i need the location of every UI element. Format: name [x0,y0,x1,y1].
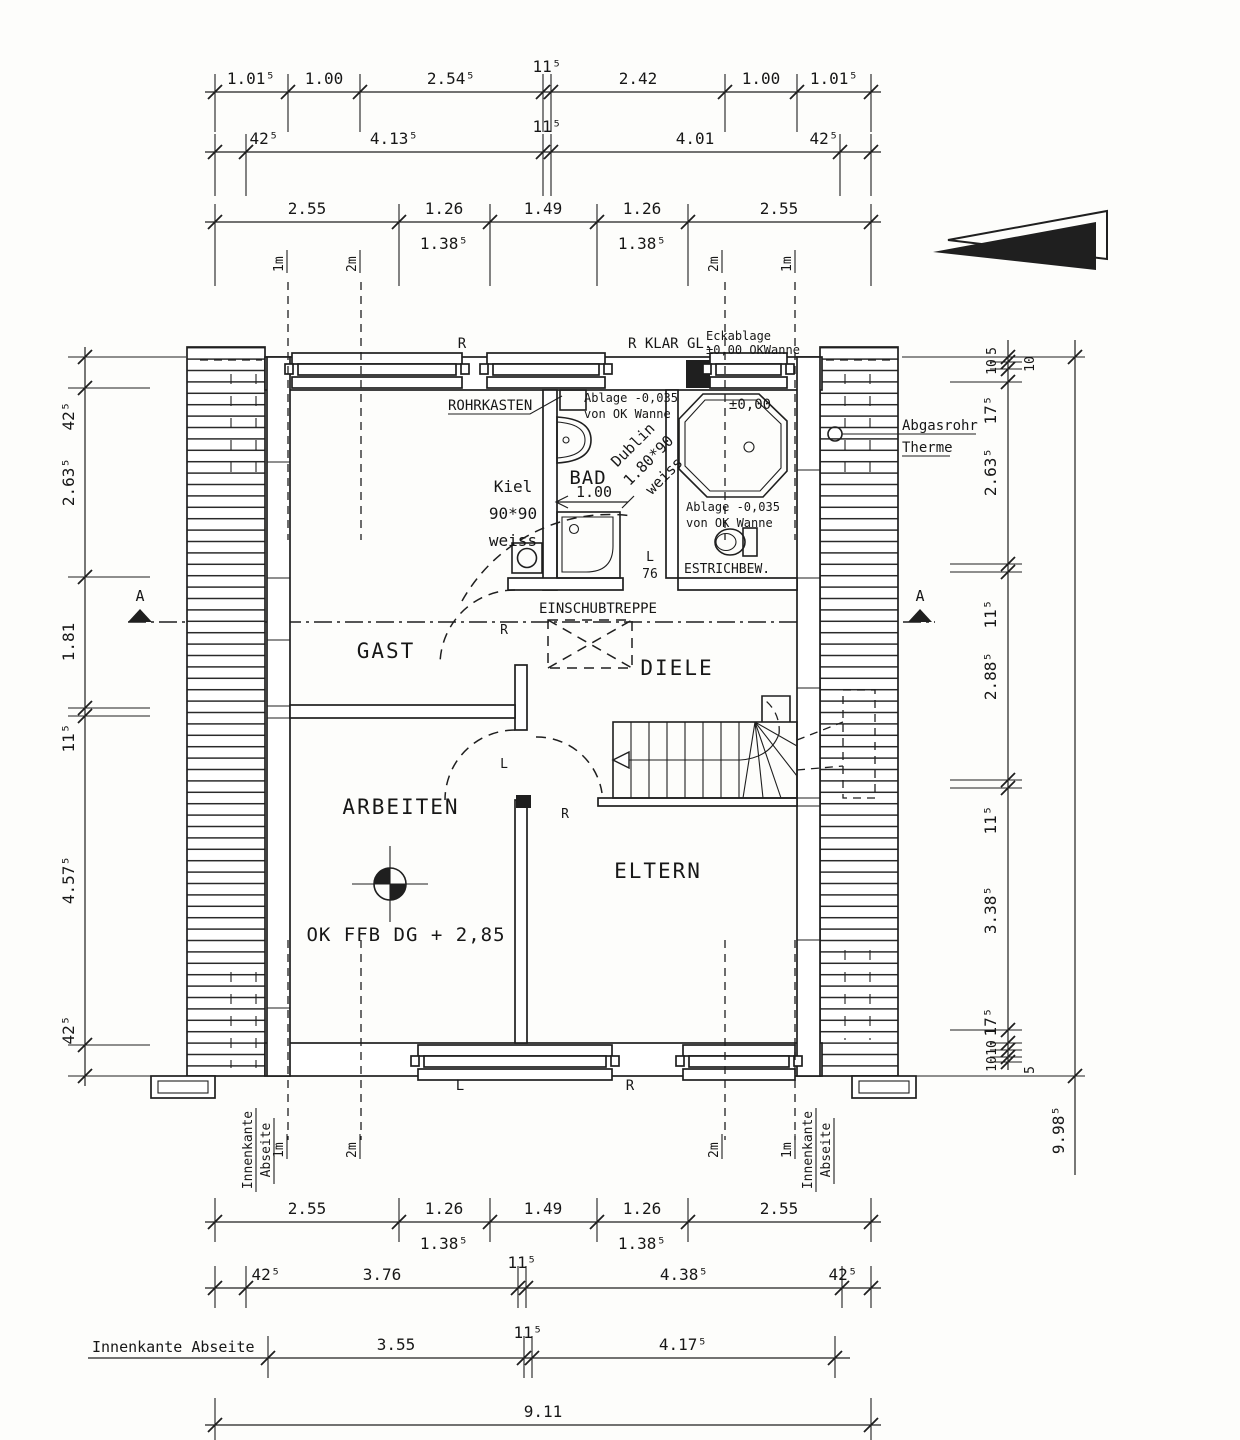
door-label: 76 [642,567,658,582]
height-line-label: 2m [345,1142,360,1158]
dim-label: 1.00 [305,69,344,88]
dim-label: 10 [985,1040,1000,1056]
right-dimension-chains: 5 10 10 17⁵ 2.63⁵ 11⁵ 2.88⁵ 11⁵ 3.38⁵ 17… [902,340,1085,1175]
height-line-label: 1m [780,1142,795,1158]
dim-label-total-height: 9.98⁵ [1049,1106,1068,1154]
section-marker-left-icon [128,609,152,622]
dim-label: 1.81 [59,623,78,662]
dim-label: 1.38⁵ [420,1234,468,1253]
dim-label: 1.49 [524,1199,563,1218]
door-label: L [646,550,654,565]
floorplan-page: A A 1m 2m 2m 1m 1m 2 [0,0,1240,1440]
dim-label: 4.17⁵ [659,1335,707,1354]
dim-label: 17⁵ [981,396,1000,425]
dim-label: 1.01⁵ [227,69,275,88]
dim-label: 3.38⁵ [981,886,1000,934]
floorplan-drawing: A A 1m 2m 2m 1m 1m 2 [0,0,1240,1440]
dim-label: 10 [985,359,1000,375]
floor-level-label: OK FFB DG + 2,85 [306,924,505,946]
dim-label: 2.54⁵ [427,69,475,88]
door-label: R [500,623,508,638]
dim-label: 42⁵ [250,129,279,148]
window-label: R [458,336,467,352]
top-dimension-chains: 1.01⁵ 1.00 2.54⁵ 11⁵ 2.42 1.00 1.01⁵ 42⁵… [205,57,881,286]
windows-bottom [411,1045,802,1080]
dim-label: 11⁵ [508,1253,537,1272]
wall-left [267,357,290,1076]
dim-label: 11⁵ [533,117,562,136]
dim-label: 11⁵ [59,724,78,753]
level-marker [352,846,428,922]
window-label: R [626,1078,635,1094]
dim-label: 2.55 [288,1199,327,1218]
dim-label: 42⁵ [810,129,839,148]
toilet-icon [715,528,757,556]
dim-label: 2.63⁵ [59,458,78,506]
dim-label: 1.00 [742,69,781,88]
room-label-eltern: ELTERN [614,859,702,883]
ablage-label: von OK Wanne [686,516,773,530]
window [703,353,794,388]
window [676,1045,802,1080]
eaves-box-left [151,1076,215,1098]
svg-text:Therme: Therme [902,440,953,456]
wall-block [516,795,531,808]
window-label: R KLAR GL. [628,336,712,352]
height-line-label: 2m [345,256,360,272]
shower-type-label: weiss [489,531,537,550]
room-label-bad: BAD [569,467,606,489]
estrich-label: ESTRICHBEW. [684,562,770,577]
dim-label: 4.01 [676,129,715,148]
roof-band-right [820,347,898,1076]
pipe-duct-box [560,390,586,410]
bottom-dimension-chains: 2.55 1.26 1.38⁵ 1.49 1.26 1.38⁵ 2.55 42⁵… [88,1198,881,1440]
shower-type-label: 90*90 [489,504,537,523]
svg-text:Innenkante: Innenkante [801,1111,816,1189]
dim-label: 10 [985,1056,1000,1072]
dim-label: 2.42 [619,69,658,88]
height-line-label: 2m [707,1142,722,1158]
dim-label: 42⁵ [829,1265,858,1284]
dim-label: 17⁵ [981,1008,1000,1037]
stair-direction-arrow-icon [613,752,629,768]
rohrkasten-label: ROHRKASTEN [448,398,532,414]
dim-label-total-width: 9.11 [524,1402,563,1421]
dim-label: 42⁵ [252,1265,281,1284]
section-marker-right-icon [908,609,932,622]
dim-label: 2.63⁵ [981,448,1000,496]
ablage-label: Ablage -0,035 [584,391,678,405]
eckablage-label: ±0,00 OKWanne [706,343,800,357]
room-label-gast: GAST [357,639,416,663]
attic-ladder-label: EINSCHUBTREPPE [539,601,657,617]
window [480,353,612,388]
dim-label: 3.55 [377,1335,416,1354]
room-label-arbeiten: ARBEITEN [342,795,459,819]
dim-label: 3.76 [363,1265,402,1284]
height-line-label: 1m [272,256,287,272]
roof-band-left [187,347,265,1076]
wall-right [797,357,820,1076]
section-label-left: A [135,587,144,605]
innenkante-abseite-label: Innenkante Abseite [92,1338,255,1356]
dim-label: 1.26 [425,199,464,218]
svg-text:Abseite: Abseite [259,1122,274,1177]
dim-label: 11⁵ [981,600,1000,629]
dim-label: 4.38⁵ [660,1265,708,1284]
dim-label: 11⁵ [533,57,562,76]
dim-label: 2.55 [760,1199,799,1218]
dim-label: 1.26 [623,1199,662,1218]
dim-label: 1.38⁵ [420,234,468,253]
dim-label: 1.38⁵ [618,1234,666,1253]
left-dimension-chain: 42⁵ 2.63⁵ 1.81 11⁵ 4.57⁵ 42⁵ [59,347,186,1086]
level-label: ±0,00 [729,397,771,413]
dim-label: 1.49 [524,199,563,218]
dim-label: 10 [1023,356,1038,372]
shower-type-label: Kiel [494,477,533,496]
ablage-label: von OK Wanne [584,407,671,421]
north-arrow-icon [933,211,1107,270]
dim-label: 2.88⁵ [981,652,1000,700]
window [411,1045,619,1080]
eaves-box-right [852,1076,916,1098]
dim-label: 5 [985,347,1000,355]
door-arc-eltern [536,737,602,793]
dim-label: 4.57⁵ [59,856,78,904]
dim-label: 42⁵ [59,1016,78,1045]
svg-text:Innenkante: Innenkante [241,1111,256,1189]
dim-label: 1.26 [623,199,662,218]
height-line-label: 1m [780,256,795,272]
dim-label: 11⁵ [514,1323,543,1342]
ablage-label: Ablage -0,035 [686,500,780,514]
dim-label: 5 [1023,1066,1038,1074]
height-line-label: 2m [707,256,722,272]
door-label: L [500,757,508,772]
svg-text:Abgasrohr: Abgasrohr [902,418,978,434]
dim-label: 2.55 [760,199,799,218]
window [285,353,469,388]
section-label-right: A [915,587,924,605]
dim-label: 2.55 [288,199,327,218]
window-label: L [456,1078,464,1094]
shower-icon [557,512,620,578]
attic-ladder: EINSCHUBTREPPE [539,601,657,668]
washbasin-icon [557,417,591,463]
dim-label: 1.38⁵ [618,234,666,253]
innenkante-abseite-labels: Innenkante Abseite Innenkante Abseite [241,1108,834,1192]
dim-label: 42⁵ [59,402,78,431]
dim-label: 11⁵ [981,806,1000,835]
dim-label: 1.01⁵ [810,69,858,88]
door-label: R [561,807,569,822]
dim-label: 4.13⁵ [370,129,418,148]
dim-label: 1.26 [425,1199,464,1218]
eckablage-label: Eckablage [706,329,771,343]
room-label-diele: DIELE [640,656,713,680]
svg-text:Abseite: Abseite [819,1122,834,1177]
